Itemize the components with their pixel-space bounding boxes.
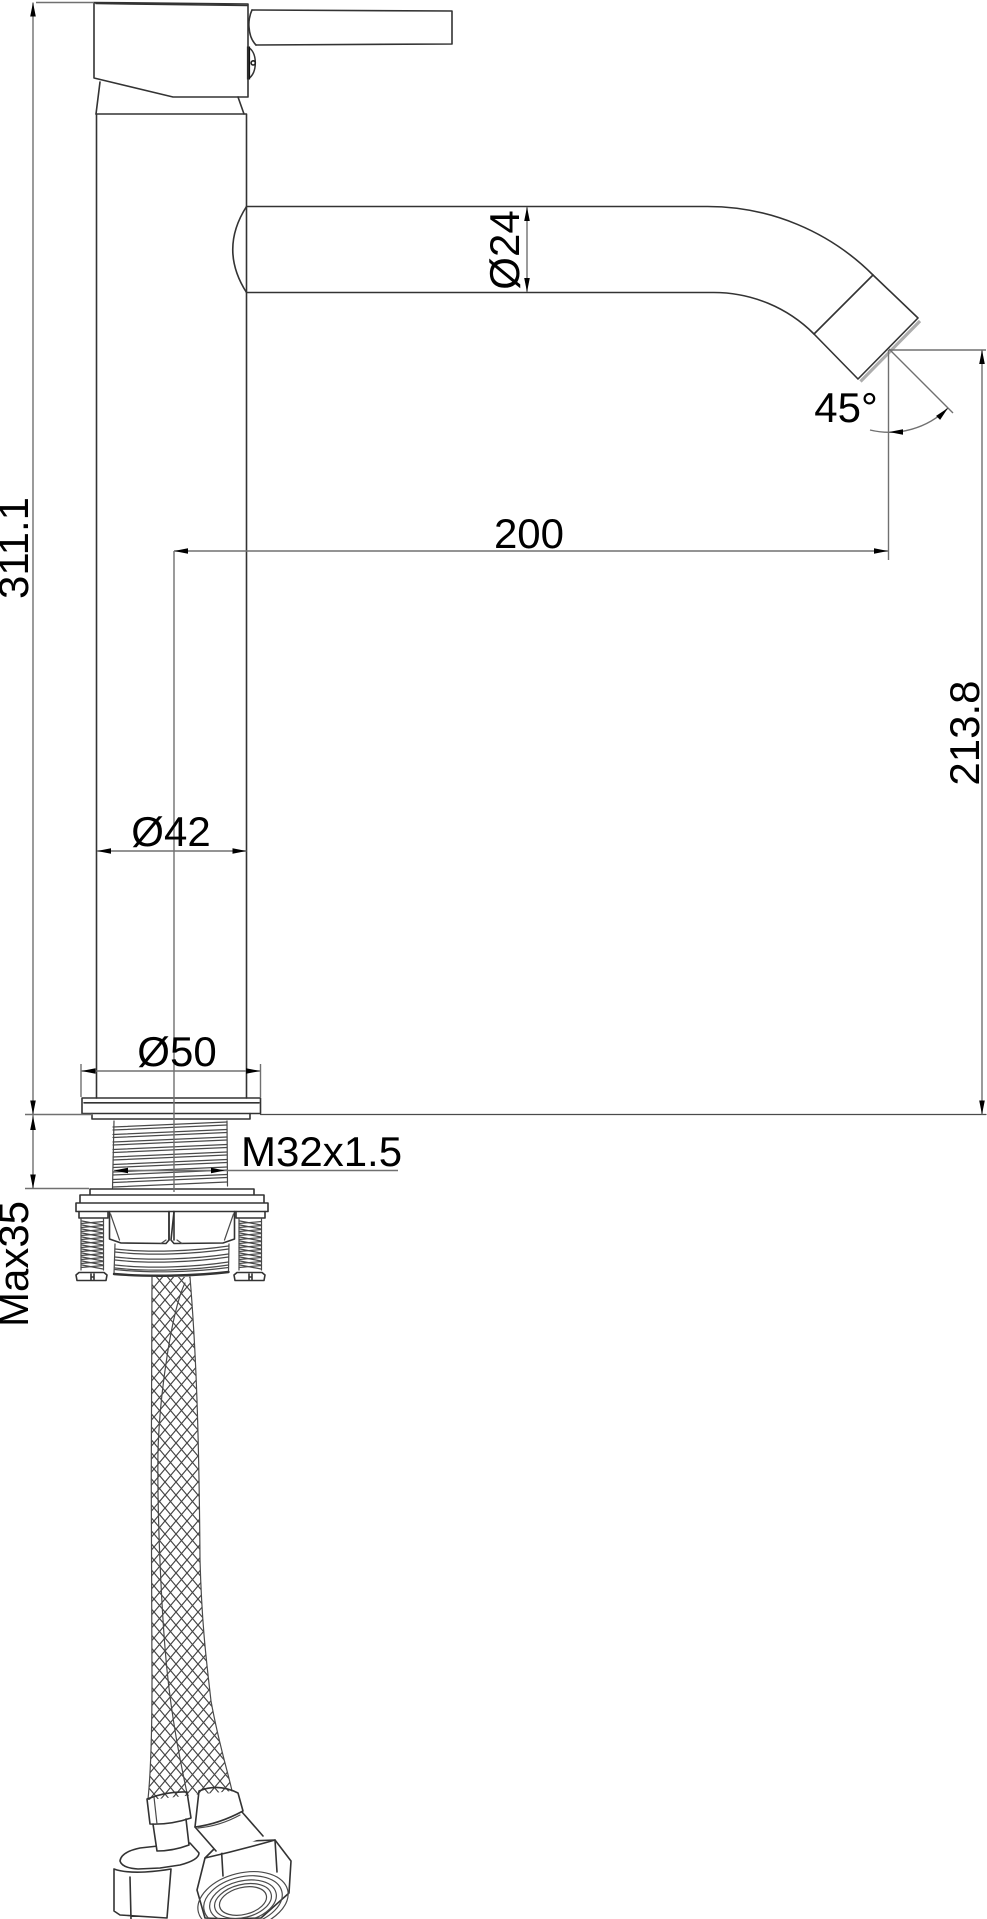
svg-text:45°: 45° (814, 384, 878, 431)
svg-text:Ø42: Ø42 (131, 808, 210, 855)
svg-text:213.8: 213.8 (941, 680, 987, 785)
svg-text:Max35: Max35 (0, 1201, 37, 1327)
svg-text:Ø50: Ø50 (137, 1028, 216, 1075)
svg-text:200: 200 (494, 510, 564, 557)
svg-text:311.1: 311.1 (0, 497, 37, 599)
svg-text:Ø24: Ø24 (481, 210, 528, 289)
svg-text:M32x1.5: M32x1.5 (241, 1128, 402, 1175)
